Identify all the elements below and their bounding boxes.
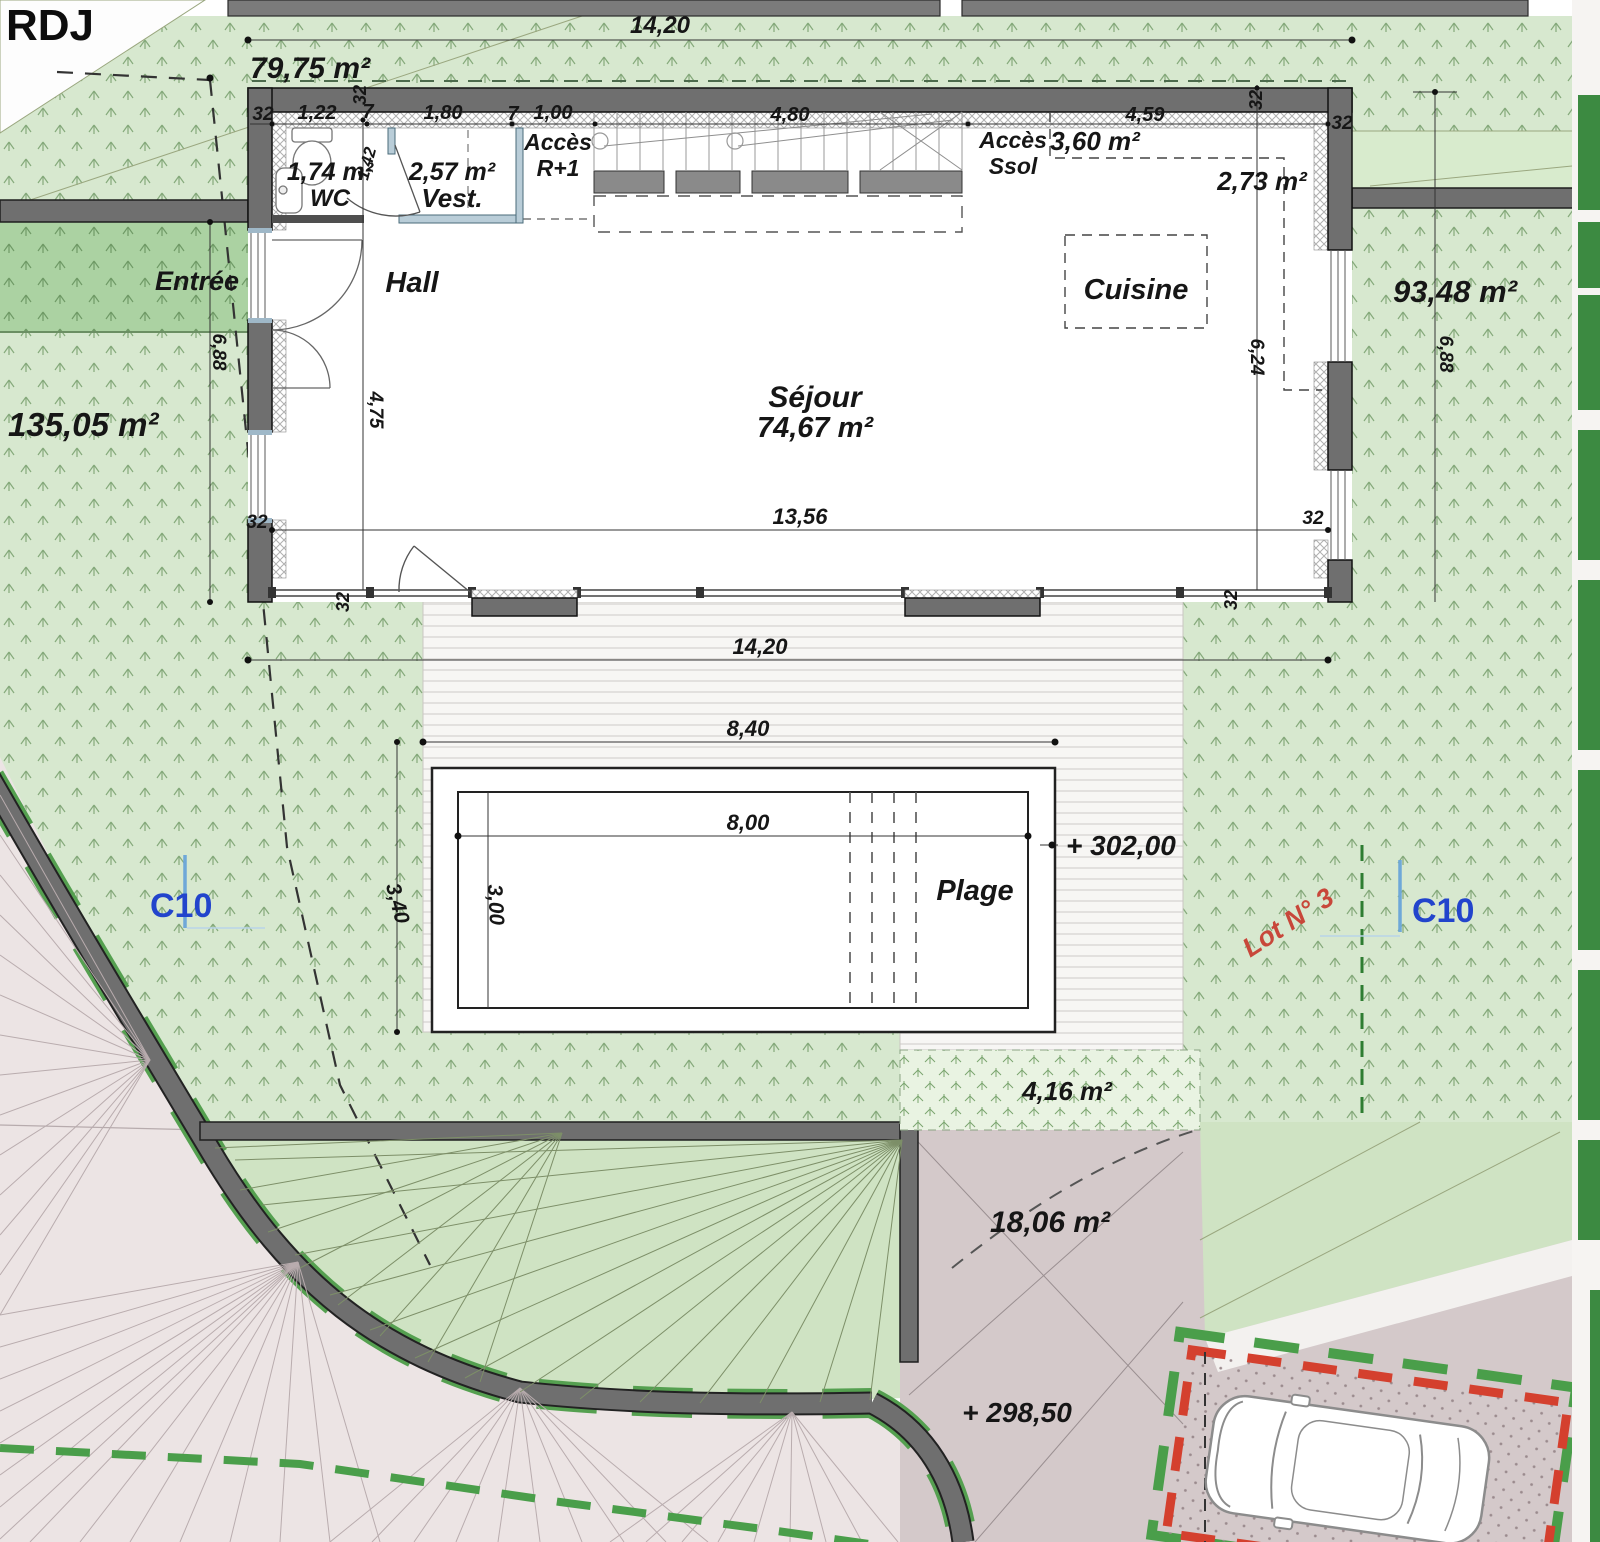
dim-1420-bottom: 14,20 [732,634,788,659]
area-273: 2,73 m² [1216,166,1308,196]
dim-688-right: 6,88 [1435,336,1456,373]
area-360: 3,60 m² [1050,126,1141,156]
partition-vest [516,128,523,223]
dim-688-left: 6,88 [208,334,229,371]
dim-7b: 7 [507,103,519,125]
dim-32: 32 [246,512,268,533]
dim-32-rot: 32 [1246,90,1266,110]
dim-32-rot: 32 [333,592,353,612]
room-wc: WC [310,185,351,212]
wall-vertical [900,1122,918,1362]
right-band [1352,131,1572,188]
dim-32-rot: 32 [350,85,370,105]
section-c10-right: C10 [1412,892,1474,930]
room-cuisine: Cuisine [1084,274,1189,306]
dim-459: 4,59 [1125,104,1166,126]
dim-840: 8,40 [727,716,771,741]
wall-west [248,320,272,432]
site-plan-svg: RDJ 79,75 m² 14,20 32 1,22 7 1,80 7 1,00… [0,0,1600,1542]
window-frame [248,430,272,435]
acces-ssol-label: Accès [978,127,1047,153]
partition-wc [272,215,364,223]
dim-32: 32 [1331,113,1353,134]
wall-stub-right [1352,188,1600,208]
pier [905,598,1040,616]
dim-480: 4,80 [770,104,810,126]
dim-624: 6,24 [1246,339,1267,376]
acces-r1-label: Accès [523,129,592,155]
dim-1420-top: 14,20 [630,12,691,39]
pier [472,598,577,616]
dim-point [207,75,214,82]
partition-wc-vest [388,128,395,154]
dim-180: 1,80 [424,102,463,124]
floor-plan-canvas: RDJ 79,75 m² 14,20 32 1,22 7 1,80 7 1,00… [0,0,1600,1542]
acces-ssol-label2: Ssol [989,153,1038,179]
wall-stub-left [0,200,248,222]
room-hall: Hall [385,267,439,299]
dim-1356: 13,56 [772,504,828,529]
dim-300: 3,00 [483,884,508,926]
acces-r1-label2: R+1 [537,155,580,181]
label-entree: Entrée [155,266,239,296]
level-terrace: + 302,00 [1066,830,1176,861]
room-vest: Vest. [421,183,482,213]
area-vest: 2,57 m² [408,158,496,186]
dim-100: 1,00 [534,102,573,124]
partition-glazed [399,215,523,223]
level-drive: + 298,50 [962,1397,1072,1428]
room-sejour: Séjour [768,381,864,414]
dim-122: 1,22 [298,102,337,124]
wall-east [1328,362,1352,470]
area-bed: 4,16 m² [1021,1076,1113,1106]
area-drive: 18,06 m² [990,1206,1111,1239]
area-right: 93,48 m² [1393,274,1518,309]
area-left: 135,05 m² [8,406,159,443]
dim-32: 32 [1302,508,1324,529]
top-road [228,0,1528,16]
window-frame [248,318,272,323]
window-frame [248,228,272,233]
dim-475: 4,75 [365,391,386,429]
section-c10-left: C10 [150,887,212,925]
dim-32-rot: 32 [1221,590,1241,610]
area-sejour: 74,67 m² [757,412,874,444]
floor-title: RDJ [6,1,94,50]
area-label-top: 79,75 m² [250,52,371,85]
dim-32: 32 [252,104,274,125]
label-plage: Plage [936,875,1013,907]
dim-800: 8,00 [727,810,771,835]
